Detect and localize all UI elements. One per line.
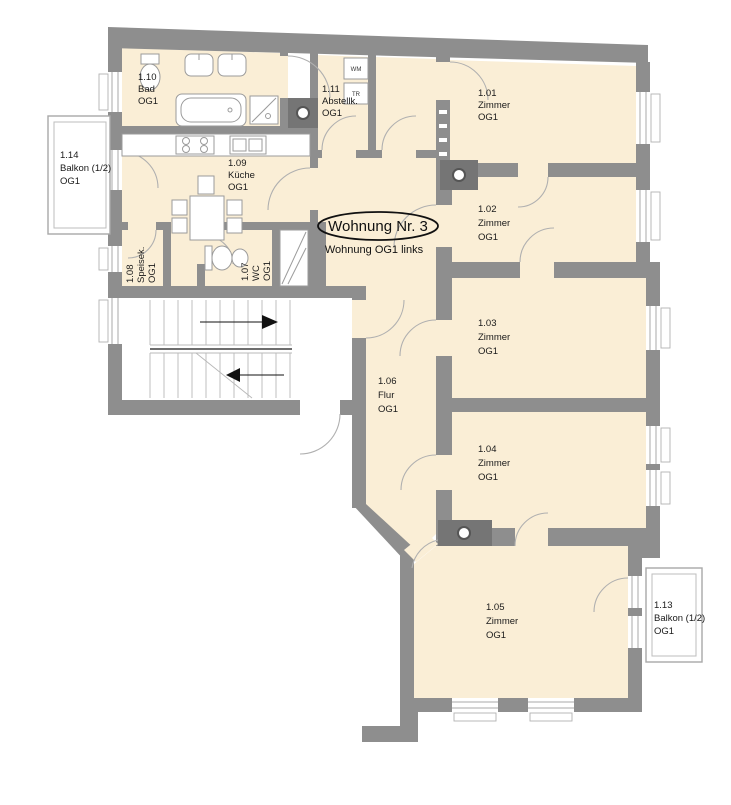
window-bad <box>108 72 122 112</box>
door-gap-kueche <box>310 168 318 210</box>
chimney-flue-3 <box>458 527 470 539</box>
window-speisek <box>108 246 122 272</box>
svg-text:1.06: 1.06 <box>378 376 397 387</box>
svg-text:OG1: OG1 <box>654 626 674 637</box>
stairwell <box>122 298 352 400</box>
svg-text:1.04: 1.04 <box>478 444 497 455</box>
window-z104-b <box>646 470 660 506</box>
chimney-flue-2 <box>453 169 465 181</box>
window-z105-south-a <box>452 698 498 712</box>
svg-text:Küche: Küche <box>228 170 255 181</box>
wall-z103-z104 <box>452 398 660 412</box>
window-z103 <box>646 306 660 350</box>
balcony-door-z105 <box>628 576 642 608</box>
svg-text:1.03: 1.03 <box>478 318 497 329</box>
door-gap-z102-z103 <box>520 262 554 278</box>
wall-speisek-east <box>163 230 171 286</box>
door-gap-z101-z102 <box>518 163 548 177</box>
door-gap-stair-flur <box>352 300 366 338</box>
svg-text:Abstellk.: Abstellk. <box>322 96 358 107</box>
svg-text:OG1: OG1 <box>138 96 158 107</box>
wall-bad-kueche <box>122 126 310 134</box>
door-gap-z104-z105 <box>515 528 548 546</box>
svg-text:1.11: 1.11 <box>322 84 340 95</box>
door-gap-abstellk <box>322 150 356 158</box>
title-text: Wohnung Nr. 3 <box>328 218 428 235</box>
svg-text:1.05: 1.05 <box>486 602 505 613</box>
kitchen-chair-left-2 <box>172 218 187 233</box>
svg-text:OG1: OG1 <box>262 261 273 281</box>
svg-text:Zimmer: Zimmer <box>486 616 518 627</box>
window-sill-stairwell <box>99 300 108 342</box>
svg-text:1.13: 1.13 <box>654 600 673 611</box>
window-sill-z105-b <box>530 713 572 721</box>
svg-text:OG1: OG1 <box>378 404 398 415</box>
window-sill-speisek <box>99 248 108 270</box>
wall-stair-top <box>108 286 366 298</box>
wall-wc-east <box>272 222 280 286</box>
floor-plan-page: WM TR 1.10 Bad OG1 1.11 Abstellk. OG1 1.… <box>0 0 731 800</box>
window-sill-z104-a <box>661 428 670 462</box>
svg-text:1.10: 1.10 <box>138 72 157 83</box>
svg-text:1.09: 1.09 <box>228 158 247 169</box>
subtitle-text: Wohnung OG1 links <box>325 244 424 256</box>
door-gap-entrance <box>300 400 340 415</box>
svg-text:OG1: OG1 <box>147 263 158 283</box>
svg-text:OG1: OG1 <box>478 472 498 483</box>
svg-text:1.14: 1.14 <box>60 150 79 161</box>
window-sill-z102 <box>651 192 660 240</box>
wall-abstellk-east <box>368 52 376 158</box>
window-z101 <box>636 92 650 144</box>
svg-text:1.02: 1.02 <box>478 204 497 215</box>
apartment-title: Wohnung Nr. 3 Wohnung OG1 links <box>318 212 438 256</box>
svg-text:OG1: OG1 <box>60 176 80 187</box>
door-gap-vestibule <box>382 150 416 158</box>
washing-machine-label: WM <box>351 67 362 73</box>
door-gap-speisek <box>128 222 156 230</box>
stove <box>176 136 214 154</box>
window-sill-z105-a <box>454 713 496 721</box>
svg-text:1.08: 1.08 <box>125 265 136 284</box>
wall-z105-west <box>400 552 414 698</box>
toilet-tank-wc <box>205 246 212 270</box>
chimney-flue-1 <box>297 107 309 119</box>
window-sill-bad <box>99 74 108 110</box>
door-gap-bad <box>280 56 288 98</box>
svg-text:OG1: OG1 <box>322 108 342 119</box>
svg-text:Balkon (1/2): Balkon (1/2) <box>654 613 705 624</box>
window-sill-z101 <box>651 94 660 142</box>
svg-text:Zimmer: Zimmer <box>478 218 510 229</box>
svg-text:OG1: OG1 <box>478 346 498 357</box>
svg-text:Zimmer: Zimmer <box>478 332 510 343</box>
kitchen-chair-right-1 <box>227 200 242 215</box>
kitchen-chair-left-1 <box>172 200 187 215</box>
room-zimmer-104 <box>452 412 646 528</box>
door-gap-flur-z104 <box>436 455 452 490</box>
svg-text:1.01: 1.01 <box>478 88 497 99</box>
window-z104-a <box>646 426 660 464</box>
window-stairwell <box>108 298 122 344</box>
svg-text:OG1: OG1 <box>486 630 506 641</box>
svg-text:1.07: 1.07 <box>240 263 251 282</box>
svg-text:Bad: Bad <box>138 84 155 95</box>
svg-text:Zimmer: Zimmer <box>478 100 510 111</box>
window-z105-east <box>628 616 642 648</box>
window-z105-south-b <box>528 698 574 712</box>
svg-text:OG1: OG1 <box>228 182 248 193</box>
wall-bottom <box>400 698 642 712</box>
svg-text:Speisek.: Speisek. <box>136 247 147 283</box>
window-sill-z104-b <box>661 472 670 504</box>
balcony-left <box>48 116 110 234</box>
door-gap-flur-z103 <box>436 320 452 356</box>
kitchen-chair-right-2 <box>227 218 242 233</box>
svg-text:Balkon (1/2): Balkon (1/2) <box>60 163 111 174</box>
svg-text:Zimmer: Zimmer <box>478 458 510 469</box>
kitchen-table <box>190 196 224 240</box>
floor-plan-canvas: WM TR 1.10 Bad OG1 1.11 Abstellk. OG1 1.… <box>0 0 731 800</box>
toilet-tank-bad <box>141 54 159 64</box>
svg-text:Flur: Flur <box>378 390 394 401</box>
toilet-wc <box>212 246 232 270</box>
svg-text:OG1: OG1 <box>478 112 498 123</box>
door-arc-entrance <box>300 414 340 454</box>
wall-step-horiz <box>362 726 418 742</box>
room-zimmer-105 <box>414 546 628 698</box>
window-sill-z103 <box>661 308 670 348</box>
door-gap-z101 <box>436 62 450 100</box>
kitchen-counter <box>122 134 310 156</box>
svg-text:OG1: OG1 <box>478 232 498 243</box>
window-z102 <box>636 190 650 242</box>
kitchen-chair-top <box>198 176 214 194</box>
svg-text:WC: WC <box>251 265 262 281</box>
